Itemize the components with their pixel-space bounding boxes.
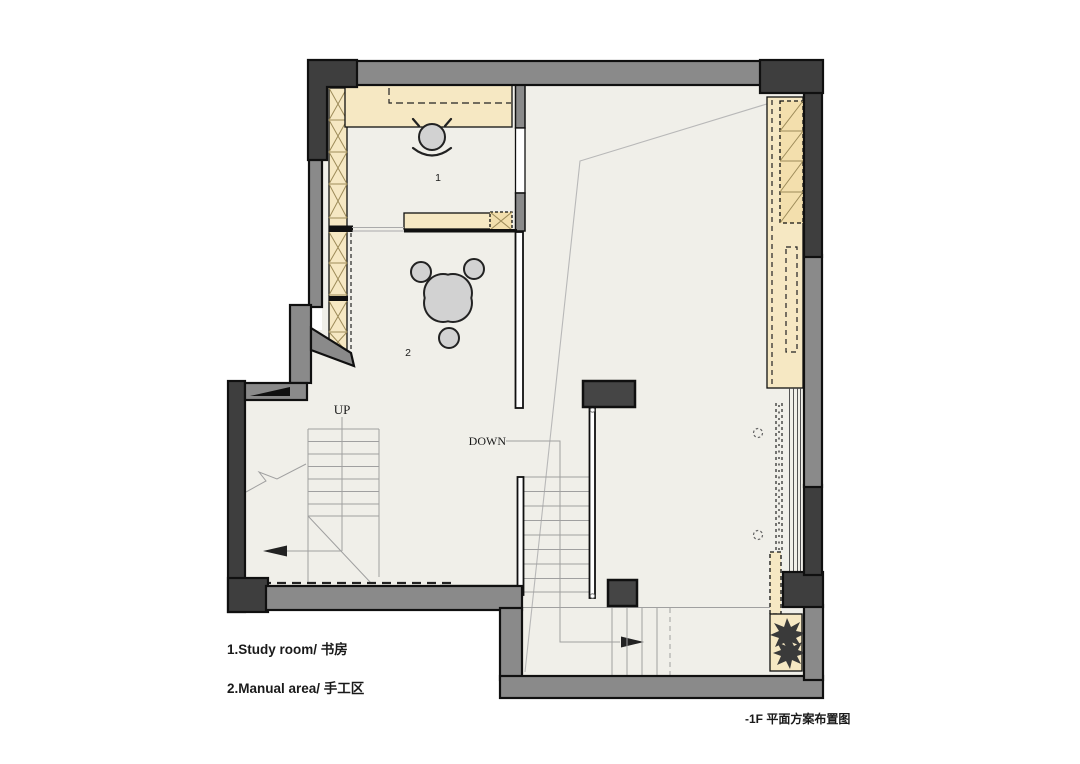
down-label: DOWN [469,434,507,448]
floor-plan-drawing: UP DOWN 1 2 1.Study room/ 书房 2.Manual ar… [0,0,1080,764]
partition-wall [516,232,524,408]
stair-rail-left [518,477,524,595]
legend: 1.Study room/ 书房 2.Manual area/ 手工区 [227,641,365,696]
study-south-wall [404,229,517,233]
drawing-caption: -1F 平面方案布置图 [745,711,850,726]
column [608,580,637,606]
column [583,381,635,407]
right-wall-bottom [804,605,823,680]
legend-item-study: 1.Study room/ 书房 [227,641,348,657]
wall-stub [330,226,352,233]
right-wall-dark-lower [804,485,822,575]
chair-icon [439,328,459,348]
room-number-manual: 2 [405,347,411,359]
study-desk [345,85,512,127]
chair-icon [464,259,484,279]
round-table-icon [424,274,472,322]
corner-block-bottom-right [783,572,823,607]
left-wall-step [290,305,311,383]
top-wall [350,61,765,85]
stair-rail-right [590,408,596,598]
corner-block-bottom-left [228,578,268,612]
bottom-step-wall [500,608,522,680]
bottom-wall-right [500,676,823,698]
up-label: UP [334,402,351,417]
legend-item-manual: 2.Manual area/ 手工区 [227,680,365,696]
right-wall-dark-upper [804,91,822,257]
plant-box [770,614,806,671]
right-wall-gray [804,255,822,487]
bottom-wall-left [266,586,522,610]
floor-plan-page: UP DOWN 1 2 1.Study room/ 书房 2.Manual ar… [0,0,1080,764]
study-bench [404,212,512,230]
interior-window [516,128,526,193]
corner-block-top-right [760,60,823,93]
room-number-study: 1 [435,172,441,184]
chair-icon [411,262,431,282]
